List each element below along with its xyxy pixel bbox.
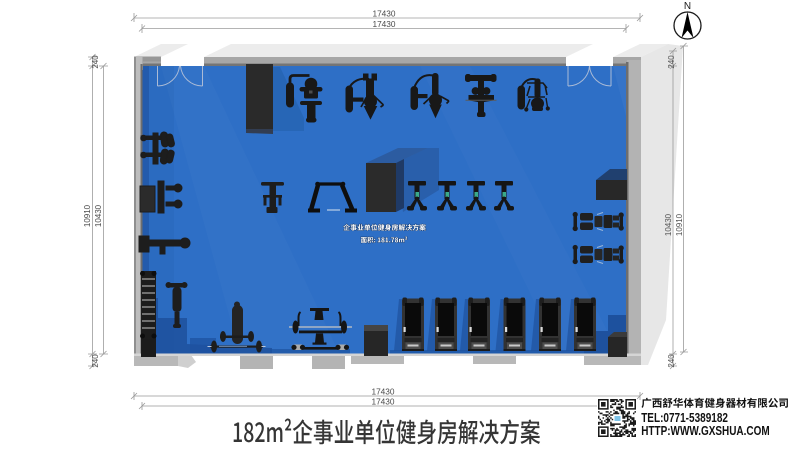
svg-text:17430: 17430 [371,387,394,397]
svg-text:HTTP:WWW.GXSHUA.COM: HTTP:WWW.GXSHUA.COM [641,425,769,438]
svg-text:10430: 10430 [664,213,673,236]
svg-text:TEL:0771-5389182: TEL:0771-5389182 [641,411,728,426]
svg-text:10430: 10430 [94,204,103,227]
svg-text:240: 240 [91,354,100,368]
svg-text:240: 240 [667,55,676,69]
svg-text:240: 240 [667,354,676,368]
svg-text:N: N [684,1,691,12]
svg-text:240: 240 [91,55,100,69]
svg-text:10910: 10910 [675,213,684,236]
svg-text:17430: 17430 [371,397,394,407]
svg-text:17430: 17430 [372,9,395,19]
svg-text:17430: 17430 [372,19,395,29]
svg-text:10910: 10910 [83,204,92,227]
